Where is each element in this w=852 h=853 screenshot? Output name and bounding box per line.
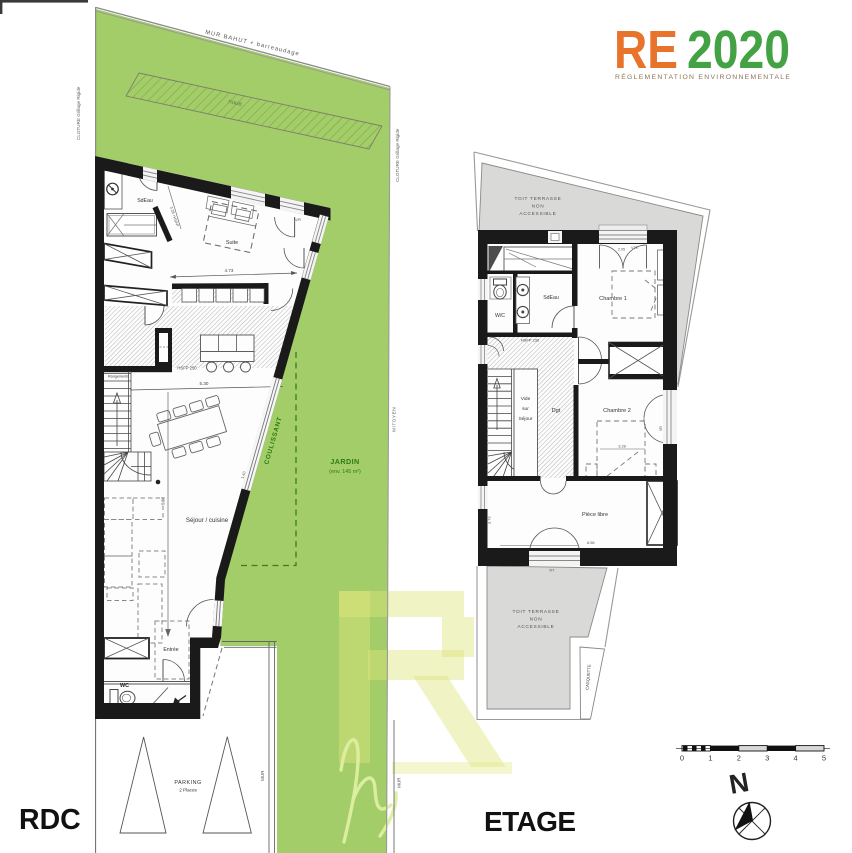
svg-text:5.30: 5.30 <box>200 381 209 386</box>
svg-text:CLOTURE Grillage Rigide: CLOTURE Grillage Rigide <box>76 86 81 140</box>
svg-text:ACCESSIBLE: ACCESSIBLE <box>517 624 554 630</box>
svg-text:Chambre 1: Chambre 1 <box>599 296 627 302</box>
svg-text:Séjour / cuisine: Séjour / cuisine <box>186 517 229 524</box>
svg-text:RDC: RDC <box>19 804 81 836</box>
svg-text:SdEau: SdEau <box>137 198 153 204</box>
svg-text:W/C: W/C <box>495 313 505 319</box>
svg-text:TOIT TERRASSE: TOIT TERRASSE <box>513 609 560 615</box>
svg-text:RE: RE <box>614 20 678 80</box>
svg-text:HSFP 250: HSFP 250 <box>177 366 197 371</box>
svg-text:Suite: Suite <box>226 240 238 246</box>
svg-text:SdEau: SdEau <box>543 295 559 301</box>
svg-text:Chambre 2: Chambre 2 <box>603 408 631 414</box>
svg-text:MUR: MUR <box>260 770 265 781</box>
svg-text:2: 2 <box>737 754 741 763</box>
svg-text:Entrée: Entrée <box>163 647 178 653</box>
svg-text:2020: 2020 <box>687 20 790 80</box>
svg-text:RÉGLEMENTATION ENVIRONNEMENTAL: RÉGLEMENTATION ENVIRONNEMENTALE <box>615 72 791 81</box>
svg-text:4: 4 <box>794 754 798 763</box>
svg-text:TOIT TERRASSE: TOIT TERRASSE <box>515 196 562 202</box>
svg-text:Séjour: Séjour <box>519 416 533 422</box>
svg-text:6.56: 6.56 <box>587 540 595 545</box>
svg-text:4.73: 4.73 <box>225 268 234 273</box>
svg-text:MITOYEN: MITOYEN <box>392 407 398 432</box>
svg-text:2.05: 2.05 <box>618 248 625 252</box>
svg-text:HSFP 230: HSFP 230 <box>521 338 540 343</box>
svg-text:2 Places: 2 Places <box>179 788 197 793</box>
svg-text:Pièce libre: Pièce libre <box>582 512 608 518</box>
svg-text:(env. 145 m²): (env. 145 m²) <box>329 469 361 475</box>
svg-text:0: 0 <box>680 754 684 763</box>
svg-text:NON: NON <box>532 204 545 210</box>
svg-text:Vide: Vide <box>521 396 531 402</box>
svg-text:VR: VR <box>659 426 663 431</box>
svg-text:ETAGE: ETAGE <box>484 806 576 837</box>
svg-text:VTE: VTE <box>631 246 639 250</box>
svg-text:1: 1 <box>708 754 712 763</box>
svg-text:sur: sur <box>522 406 529 412</box>
svg-text:ACCESSIBLE: ACCESSIBLE <box>519 211 556 217</box>
svg-text:V/R: V/R <box>295 218 301 222</box>
svg-text:3: 3 <box>765 754 769 763</box>
svg-text:Dgt: Dgt <box>552 408 561 414</box>
svg-text:VIT: VIT <box>549 569 555 573</box>
svg-text:3.28: 3.28 <box>618 444 626 449</box>
svg-text:5: 5 <box>822 754 826 763</box>
svg-text:MUR: MUR <box>397 777 402 788</box>
svg-text:WC: WC <box>120 683 129 689</box>
svg-text:JARDIN: JARDIN <box>330 457 359 466</box>
svg-text:Rangements: Rangements <box>108 375 129 379</box>
svg-text:NON: NON <box>530 617 543 623</box>
svg-text:CLOTURE Grillage Rigide: CLOTURE Grillage Rigide <box>395 128 400 182</box>
svg-text:PARKING: PARKING <box>174 780 201 786</box>
